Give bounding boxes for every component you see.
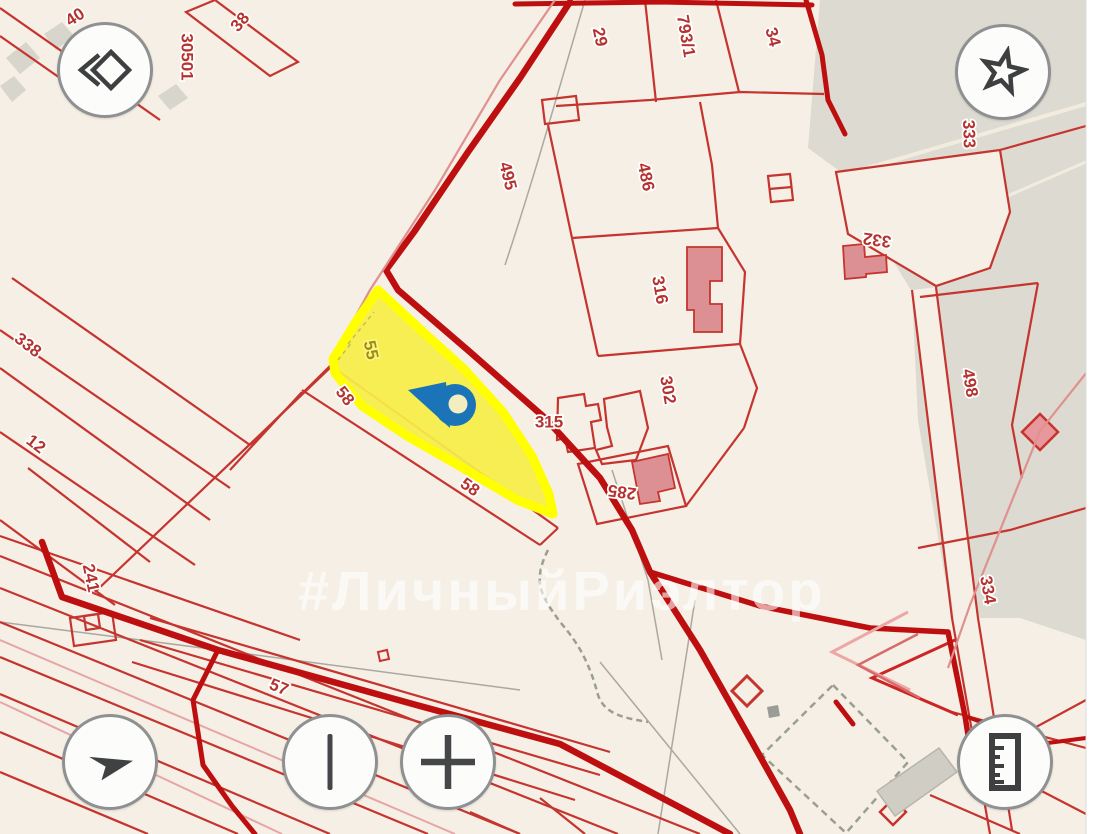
- watermark-text: #ЛичныйРиэлтор: [298, 559, 825, 622]
- star-icon: [977, 46, 1029, 98]
- zoom-out-button[interactable]: [282, 714, 378, 810]
- parcel-label: 332: [862, 229, 893, 252]
- plus-icon: [417, 731, 479, 793]
- parcel-label: 315: [535, 413, 563, 432]
- edge-strip: [1086, 0, 1100, 834]
- map-screen: 40305013829793/1343334954863323163024983…: [0, 0, 1100, 834]
- compass-button[interactable]: [62, 714, 158, 810]
- cadastral-map[interactable]: 40305013829793/1343334954863323163024983…: [0, 0, 1100, 834]
- parcel-label: 29: [589, 26, 612, 48]
- vertical-bar-icon: [320, 731, 340, 793]
- zoom-in-button[interactable]: [400, 714, 496, 810]
- parcel-label: 285: [607, 481, 638, 504]
- map-style-button[interactable]: [57, 22, 153, 118]
- compass-arrow-icon: [84, 740, 136, 784]
- parcel-label: 30501: [178, 33, 197, 80]
- parcel-label: 333: [959, 119, 979, 148]
- parcel-label: 55: [360, 339, 383, 361]
- favorites-button[interactable]: [955, 24, 1051, 120]
- measure-button[interactable]: [957, 714, 1053, 810]
- diamond-chevron-icon: [76, 46, 134, 94]
- ruler-icon: [985, 730, 1025, 794]
